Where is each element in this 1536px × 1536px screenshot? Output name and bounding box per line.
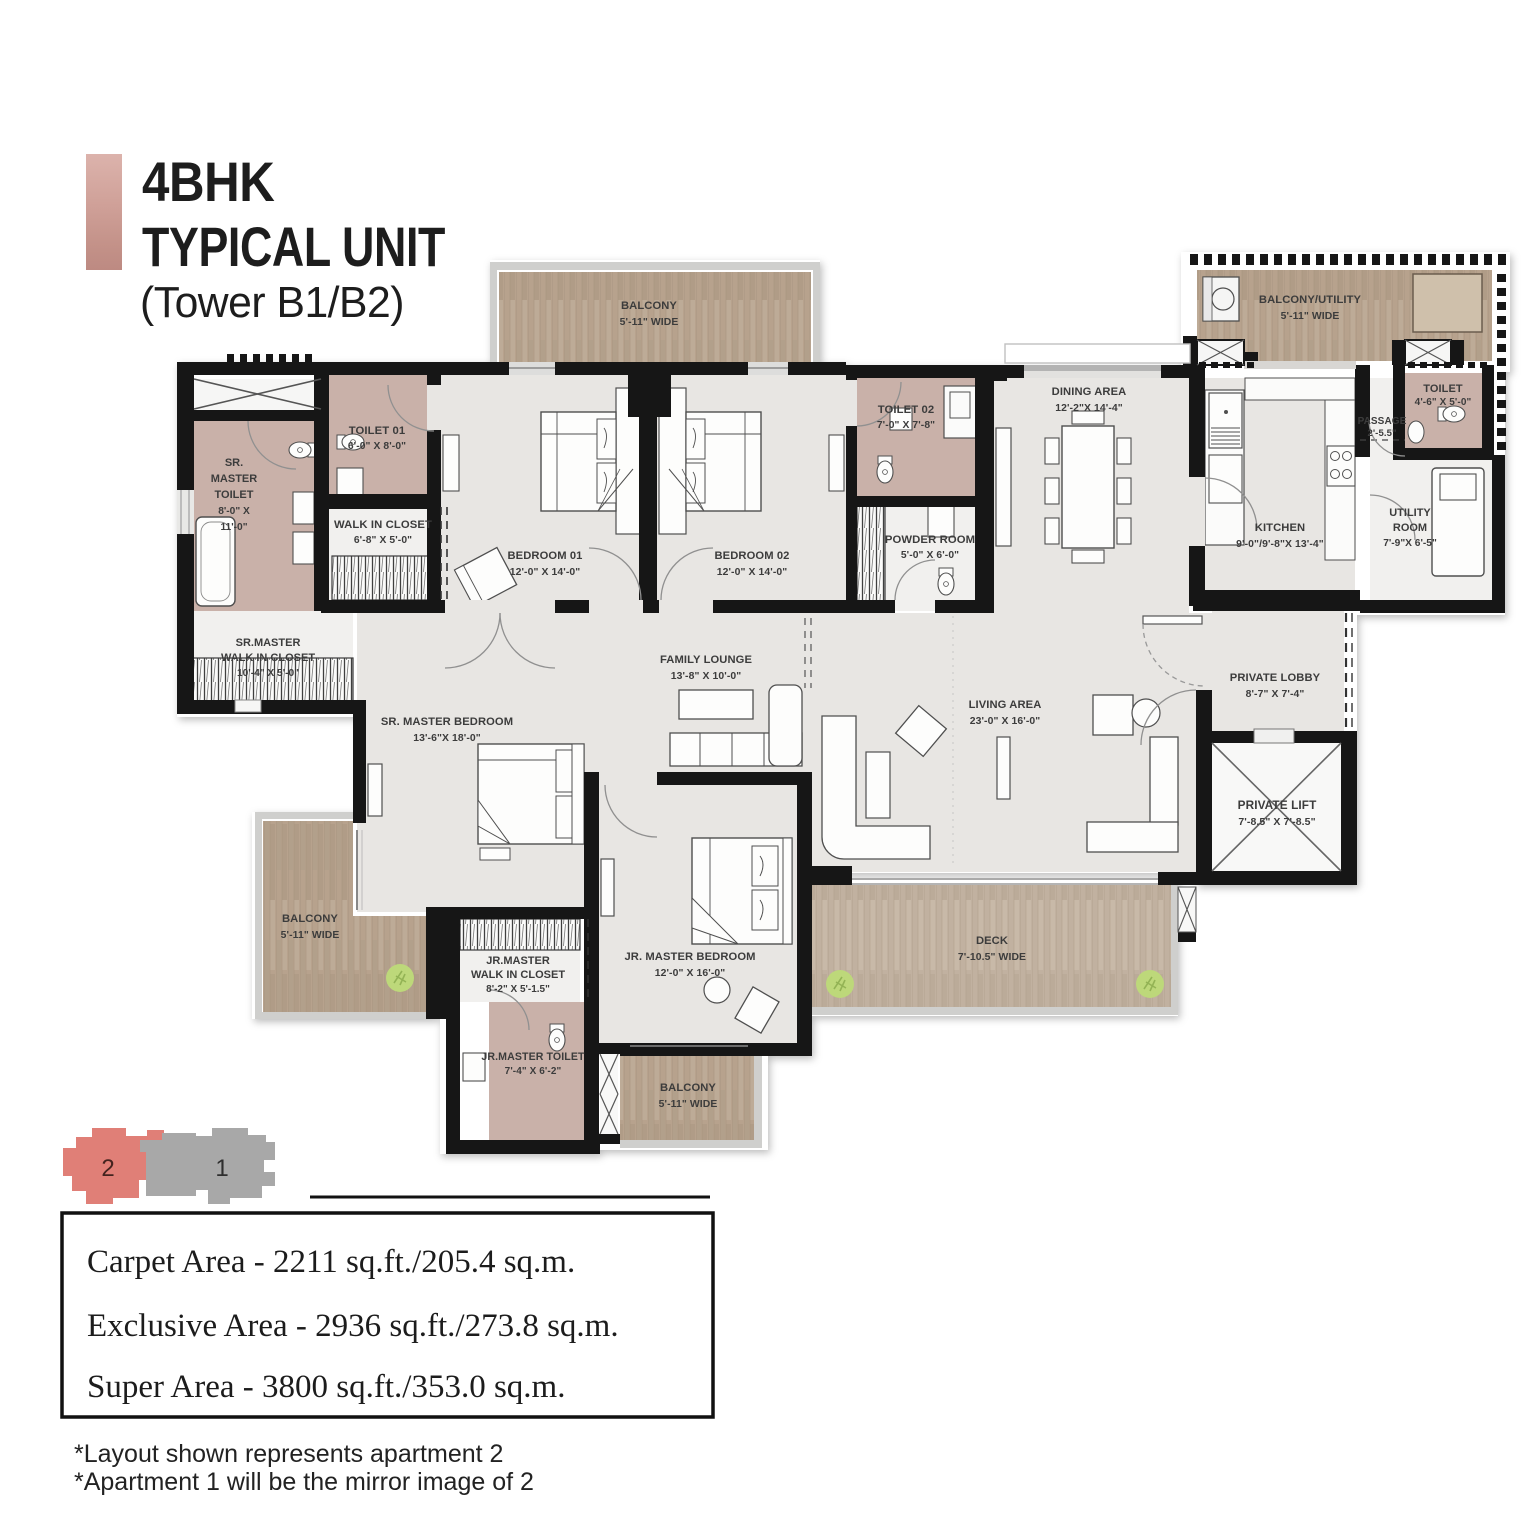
- svg-text:SR. MASTER BEDROOM: SR. MASTER BEDROOM: [381, 716, 513, 728]
- svg-text:8'-0" X: 8'-0" X: [218, 506, 250, 517]
- svg-text:BALCONY/UTILITY: BALCONY/UTILITY: [1259, 294, 1362, 306]
- svg-text:5'-11" WIDE: 5'-11" WIDE: [1281, 311, 1340, 322]
- svg-text:11'-0": 11'-0": [220, 522, 247, 533]
- svg-text:8'-7" X 7'-4": 8'-7" X 7'-4": [1246, 689, 1305, 700]
- svg-text:*Apartment 1 will be the mirro: *Apartment 1 will be the mirror image of…: [74, 1468, 534, 1496]
- svg-text:FAMILY LOUNGE: FAMILY LOUNGE: [660, 654, 752, 666]
- svg-text:5'-11" WIDE: 5'-11" WIDE: [281, 930, 340, 941]
- svg-text:8'-2" X 5'-1.5": 8'-2" X 5'-1.5": [486, 984, 550, 995]
- svg-text:LIVING AREA: LIVING AREA: [969, 699, 1042, 711]
- svg-text:JR. MASTER BEDROOM: JR. MASTER BEDROOM: [624, 951, 755, 963]
- svg-text:12'-0" X 16'-0": 12'-0" X 16'-0": [655, 968, 726, 979]
- svg-text:TYPICAL UNIT: TYPICAL UNIT: [142, 215, 445, 278]
- svg-text:PRIVATE LIFT: PRIVATE LIFT: [1238, 798, 1317, 812]
- svg-text:1: 1: [215, 1155, 228, 1182]
- svg-text:PRIVATE LOBBY: PRIVATE LOBBY: [1230, 672, 1321, 684]
- svg-text:TOILET 02: TOILET 02: [878, 404, 935, 416]
- svg-text:5'-11" WIDE: 5'-11" WIDE: [620, 317, 679, 328]
- svg-text:ROOM: ROOM: [1393, 522, 1427, 534]
- svg-text:4'-6" X 5'-0": 4'-6" X 5'-0": [1415, 397, 1472, 408]
- svg-text:2: 2: [101, 1155, 114, 1182]
- svg-text:BALCONY: BALCONY: [621, 300, 677, 312]
- svg-text:POWDER ROOM: POWDER ROOM: [885, 534, 975, 546]
- svg-text:JR.MASTER TOILET: JR.MASTER TOILET: [481, 1051, 585, 1063]
- svg-text:9'-0"/9'-8"X 13'-4": 9'-0"/9'-8"X 13'-4": [1236, 539, 1324, 550]
- svg-text:JR.MASTER: JR.MASTER: [486, 955, 550, 967]
- svg-text:12'-0" X 14'-0": 12'-0" X 14'-0": [717, 567, 788, 578]
- svg-text:2'-5.5": 2'-5.5": [1367, 428, 1396, 439]
- svg-text:12'-2"X 14'-4": 12'-2"X 14'-4": [1055, 403, 1123, 414]
- svg-text:Super Area - 3800 sq.ft./353.0: Super Area - 3800 sq.ft./353.0 sq.m.: [87, 1369, 565, 1405]
- svg-text:7'-4" X 6'-2": 7'-4" X 6'-2": [505, 1066, 562, 1077]
- svg-text:10'-4" X 5'-0": 10'-4" X 5'-0": [237, 668, 299, 679]
- svg-text:13'-8" X 10'-0": 13'-8" X 10'-0": [671, 671, 742, 682]
- svg-text:6'-0" X 8'-0": 6'-0" X 8'-0": [348, 441, 406, 452]
- svg-text:WALK IN CLOSET: WALK IN CLOSET: [334, 519, 432, 531]
- svg-text:TOILET: TOILET: [1423, 383, 1463, 395]
- svg-text:(Tower B1/B2): (Tower B1/B2): [140, 278, 404, 327]
- svg-text:23'-0" X 16'-0": 23'-0" X 16'-0": [970, 716, 1041, 727]
- svg-text:WALK IN CLOSET: WALK IN CLOSET: [221, 652, 315, 664]
- svg-text:Carpet Area - 2211 sq.ft./205.: Carpet Area - 2211 sq.ft./205.4 sq.m.: [87, 1244, 575, 1280]
- svg-text:13'-6"X 18'-0": 13'-6"X 18'-0": [413, 733, 481, 744]
- svg-text:5'-0" X 6'-0": 5'-0" X 6'-0": [901, 550, 959, 561]
- svg-text:7'-0" X 7'-8": 7'-0" X 7'-8": [877, 420, 935, 431]
- svg-text:4BHK: 4BHK: [142, 151, 275, 214]
- svg-text:DINING AREA: DINING AREA: [1052, 386, 1127, 398]
- svg-text:MASTER: MASTER: [211, 473, 258, 485]
- svg-text:6'-8" X 5'-0": 6'-8" X 5'-0": [354, 535, 412, 546]
- svg-text:5'-11" WIDE: 5'-11" WIDE: [659, 1099, 718, 1110]
- svg-text:KITCHEN: KITCHEN: [1255, 522, 1305, 534]
- svg-text:BALCONY: BALCONY: [660, 1082, 716, 1094]
- svg-text:Exclusive Area - 2936 sq.ft./2: Exclusive Area - 2936 sq.ft./273.8 sq.m.: [87, 1308, 619, 1344]
- svg-text:WALK IN CLOSET: WALK IN CLOSET: [471, 969, 565, 981]
- svg-text:SR.MASTER: SR.MASTER: [236, 637, 301, 649]
- svg-text:BEDROOM 02: BEDROOM 02: [715, 550, 790, 562]
- svg-text:SR.: SR.: [225, 457, 243, 469]
- svg-text:7'-10.5" WIDE: 7'-10.5" WIDE: [958, 952, 1026, 963]
- svg-text:BALCONY: BALCONY: [282, 913, 338, 925]
- svg-text:7'-8.5" X 7'-8.5": 7'-8.5" X 7'-8.5": [1238, 816, 1315, 828]
- svg-text:DECK: DECK: [976, 935, 1008, 947]
- svg-text:TOILET 01: TOILET 01: [349, 425, 406, 437]
- svg-text:*Layout shown represents apart: *Layout shown represents apartment 2: [74, 1440, 503, 1468]
- svg-text:TOILET: TOILET: [215, 489, 254, 501]
- svg-text:7'-9"X 6'-5": 7'-9"X 6'-5": [1383, 538, 1437, 549]
- svg-text:UTILITY: UTILITY: [1389, 507, 1431, 519]
- svg-text:BEDROOM 01: BEDROOM 01: [508, 550, 583, 562]
- svg-text:PASSAGE: PASSAGE: [1358, 416, 1407, 427]
- svg-text:12'-0" X 14'-0": 12'-0" X 14'-0": [510, 567, 581, 578]
